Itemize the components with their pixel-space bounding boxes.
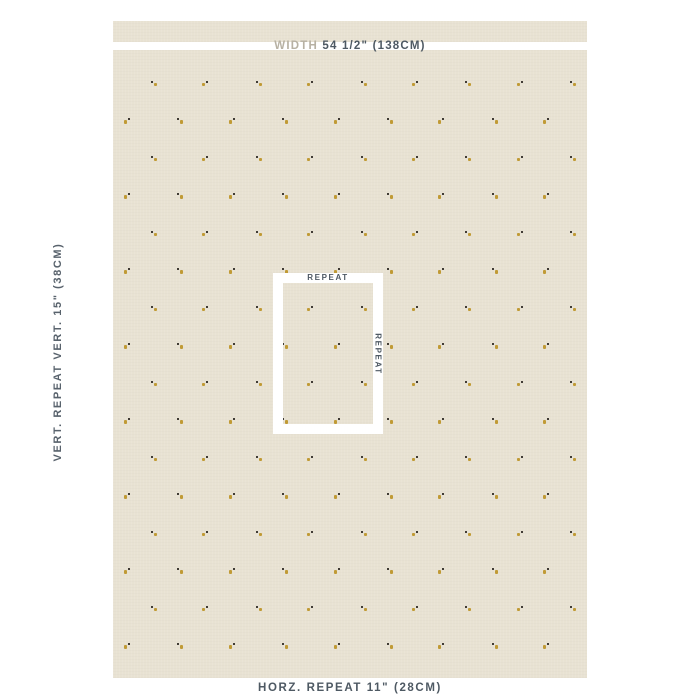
bee-motif [517, 455, 524, 462]
bee-motif [569, 155, 576, 162]
bee-motif [412, 380, 419, 387]
bee-motif [464, 305, 471, 312]
bee-motif [176, 192, 183, 199]
bee-motif [491, 267, 498, 274]
bee-motif [229, 192, 236, 199]
bee-motif [543, 567, 550, 574]
bee-motif [491, 117, 498, 124]
width-label-prefix: WIDTH [274, 40, 318, 52]
bee-motif [569, 80, 576, 87]
bee-motif [569, 605, 576, 612]
bee-motif [386, 267, 393, 274]
bee-motif [517, 305, 524, 312]
bee-motif [386, 492, 393, 499]
bee-motif [360, 230, 367, 237]
bee-motif [281, 642, 288, 649]
bee-motif [202, 455, 209, 462]
bee-motif [517, 155, 524, 162]
bee-motif [438, 267, 445, 274]
bee-motif [229, 492, 236, 499]
bee-motif [569, 455, 576, 462]
bee-motif [517, 530, 524, 537]
bee-motif [150, 455, 157, 462]
bee-motif [176, 417, 183, 424]
bee-motif [543, 192, 550, 199]
bee-motif [150, 380, 157, 387]
bee-motif [438, 417, 445, 424]
bee-motif [517, 80, 524, 87]
bee-motif [229, 117, 236, 124]
bee-motif [124, 267, 131, 274]
bee-motif [307, 605, 314, 612]
bee-motif [176, 267, 183, 274]
bee-motif [464, 605, 471, 612]
bee-motif [360, 455, 367, 462]
bee-motif [307, 155, 314, 162]
bee-motif [517, 605, 524, 612]
bee-motif [412, 305, 419, 312]
bee-motif [464, 80, 471, 87]
bee-motif [412, 455, 419, 462]
bee-motif [307, 530, 314, 537]
bee-motif [438, 492, 445, 499]
bee-motif [464, 230, 471, 237]
bee-motif [202, 380, 209, 387]
bee-motif [202, 605, 209, 612]
bee-motif [360, 605, 367, 612]
bee-motif [438, 117, 445, 124]
bee-motif [543, 492, 550, 499]
bee-motif [307, 230, 314, 237]
bee-motif [334, 117, 341, 124]
bee-motif [412, 605, 419, 612]
bee-motif [124, 567, 131, 574]
bee-motif [124, 192, 131, 199]
repeat-box-top-label: REPEAT [273, 273, 383, 283]
bee-motif [124, 342, 131, 349]
width-label: WIDTH 54 1/2" (138CM) [113, 39, 587, 53]
bee-motif [464, 155, 471, 162]
bee-motif [202, 230, 209, 237]
fabric-swatch: WIDTH 54 1/2" (138CM) REPEAT REPEAT [113, 21, 587, 678]
bee-motif [491, 417, 498, 424]
repeat-box [273, 273, 383, 434]
bee-motif [386, 567, 393, 574]
bee-motif [543, 417, 550, 424]
bee-motif [281, 192, 288, 199]
bee-motif [491, 642, 498, 649]
bee-motif [124, 492, 131, 499]
bee-motif [176, 567, 183, 574]
bee-motif [543, 642, 550, 649]
width-label-value: 54 1/2" (138CM) [322, 40, 425, 52]
bee-motif [281, 117, 288, 124]
bee-motif [150, 230, 157, 237]
bee-motif [412, 530, 419, 537]
bee-motif [386, 117, 393, 124]
bee-motif [438, 342, 445, 349]
bee-motif [202, 155, 209, 162]
bee-motif [517, 380, 524, 387]
bee-motif [360, 80, 367, 87]
bee-motif [124, 642, 131, 649]
bee-motif [150, 530, 157, 537]
bee-motif [491, 567, 498, 574]
bee-motif [307, 80, 314, 87]
bee-motif [412, 80, 419, 87]
bee-motif [386, 417, 393, 424]
bee-motif [491, 492, 498, 499]
bee-motif [202, 80, 209, 87]
bee-motif [438, 567, 445, 574]
bee-motif [229, 417, 236, 424]
bee-motif [334, 642, 341, 649]
bee-motif [281, 492, 288, 499]
bee-motif [569, 230, 576, 237]
bee-motif [386, 342, 393, 349]
repeat-box-side-label: REPEAT [374, 333, 383, 374]
bee-motif [176, 117, 183, 124]
bee-motif [202, 530, 209, 537]
bee-motif [202, 305, 209, 312]
bee-motif [229, 342, 236, 349]
bee-motif [543, 342, 550, 349]
bee-motif [229, 642, 236, 649]
bee-motif [255, 455, 262, 462]
bee-motif [412, 155, 419, 162]
bee-motif [464, 380, 471, 387]
bee-motif [307, 455, 314, 462]
bee-motif [386, 192, 393, 199]
bee-motif [569, 380, 576, 387]
bee-motif [150, 305, 157, 312]
bee-motif [360, 155, 367, 162]
bee-motif [255, 380, 262, 387]
bee-motif [491, 342, 498, 349]
bee-motif [281, 567, 288, 574]
bee-motif [255, 605, 262, 612]
bee-motif [360, 530, 367, 537]
bee-motif [464, 530, 471, 537]
bee-motif [255, 530, 262, 537]
bee-motif [255, 155, 262, 162]
bee-motif [150, 605, 157, 612]
bee-motif [517, 230, 524, 237]
bee-motif [124, 417, 131, 424]
bee-motif [438, 642, 445, 649]
bee-motif [150, 155, 157, 162]
bee-motif [334, 492, 341, 499]
bee-motif [569, 305, 576, 312]
bee-motif [412, 230, 419, 237]
horizontal-repeat-label: HORZ. REPEAT 11" (28CM) [0, 681, 700, 695]
bee-motif [491, 192, 498, 199]
bee-motif [543, 117, 550, 124]
bee-motif [150, 80, 157, 87]
bee-motif [255, 230, 262, 237]
bee-motif [334, 192, 341, 199]
bee-motif [176, 342, 183, 349]
bee-motif [255, 305, 262, 312]
bee-motif [334, 567, 341, 574]
bee-motif [569, 530, 576, 537]
bee-motif [464, 455, 471, 462]
bee-motif [229, 267, 236, 274]
bee-motif [543, 267, 550, 274]
bee-motif [176, 642, 183, 649]
bee-motif [124, 117, 131, 124]
bee-motif [255, 80, 262, 87]
bee-motif [176, 492, 183, 499]
bee-motif [386, 642, 393, 649]
bee-motif [229, 567, 236, 574]
vertical-repeat-label: VERT. REPEAT VERT. 15" (38CM) [52, 243, 64, 462]
bee-motif [438, 192, 445, 199]
